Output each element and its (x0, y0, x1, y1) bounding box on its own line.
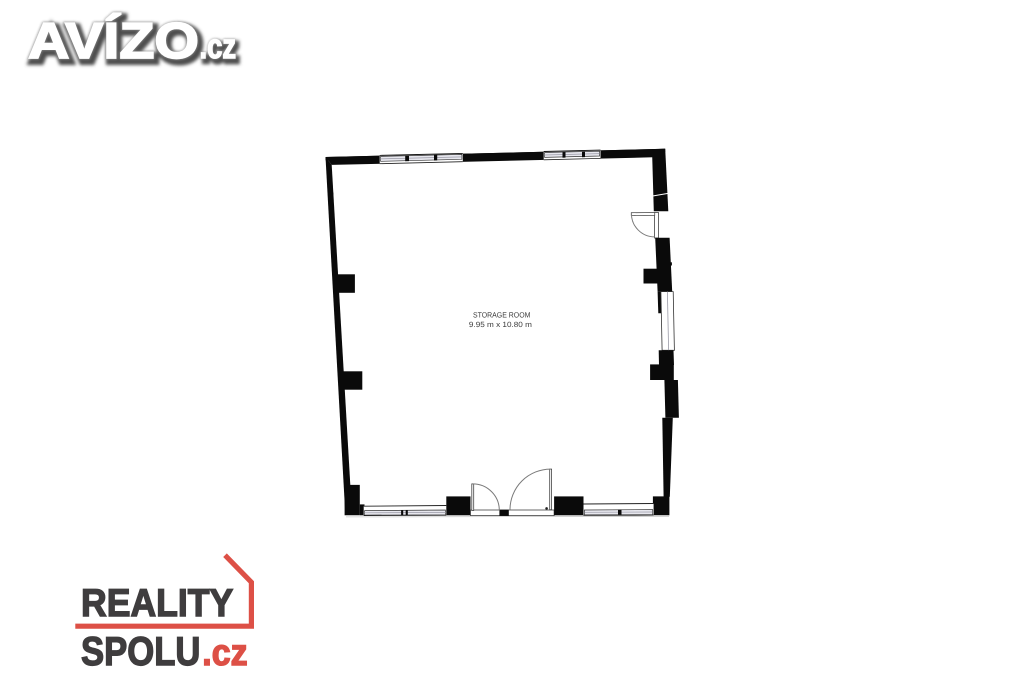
svg-text:STORAGE ROOM: STORAGE ROOM (473, 310, 531, 319)
svg-text:.cz: .cz (200, 28, 237, 66)
svg-text:AVÍZO: AVÍZO (28, 12, 199, 69)
svg-text:REALITY: REALITY (81, 582, 233, 625)
svg-text:SPOLU: SPOLU (81, 629, 200, 674)
svg-text:9.95 m x 10.80 m: 9.95 m x 10.80 m (469, 320, 532, 329)
svg-text:.cz: .cz (202, 632, 247, 673)
